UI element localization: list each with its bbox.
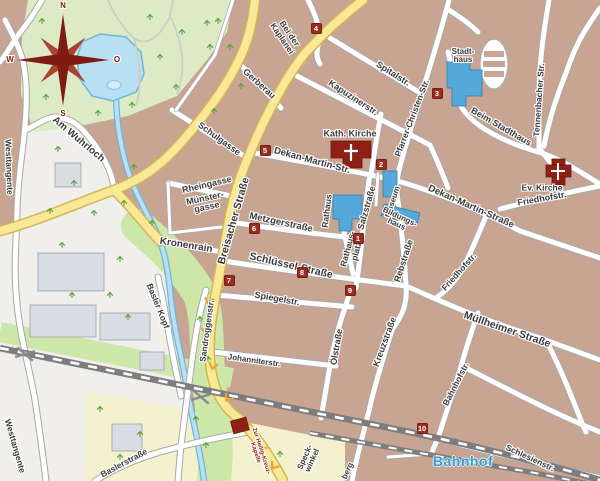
- poi-marker-10: 10: [417, 423, 428, 434]
- poi-marker-6: 6: [249, 223, 260, 234]
- poi-marker-1: 1: [353, 233, 364, 244]
- parking-oval: [480, 39, 508, 89]
- poi-marker-3: 3: [432, 88, 443, 99]
- poi-marker-7: 7: [224, 275, 235, 286]
- poi-marker-5: 5: [260, 145, 271, 156]
- city-map: Am WuhrlochWesttangenteWesttangenteSchul…: [0, 0, 600, 481]
- map-canvas: [0, 0, 600, 481]
- poi-marker-2: 2: [376, 159, 387, 170]
- poi-marker-4: 4: [311, 23, 322, 34]
- museum-building: [383, 171, 397, 197]
- poi-marker-9: 9: [345, 285, 356, 296]
- poi-marker-8: 8: [297, 267, 308, 278]
